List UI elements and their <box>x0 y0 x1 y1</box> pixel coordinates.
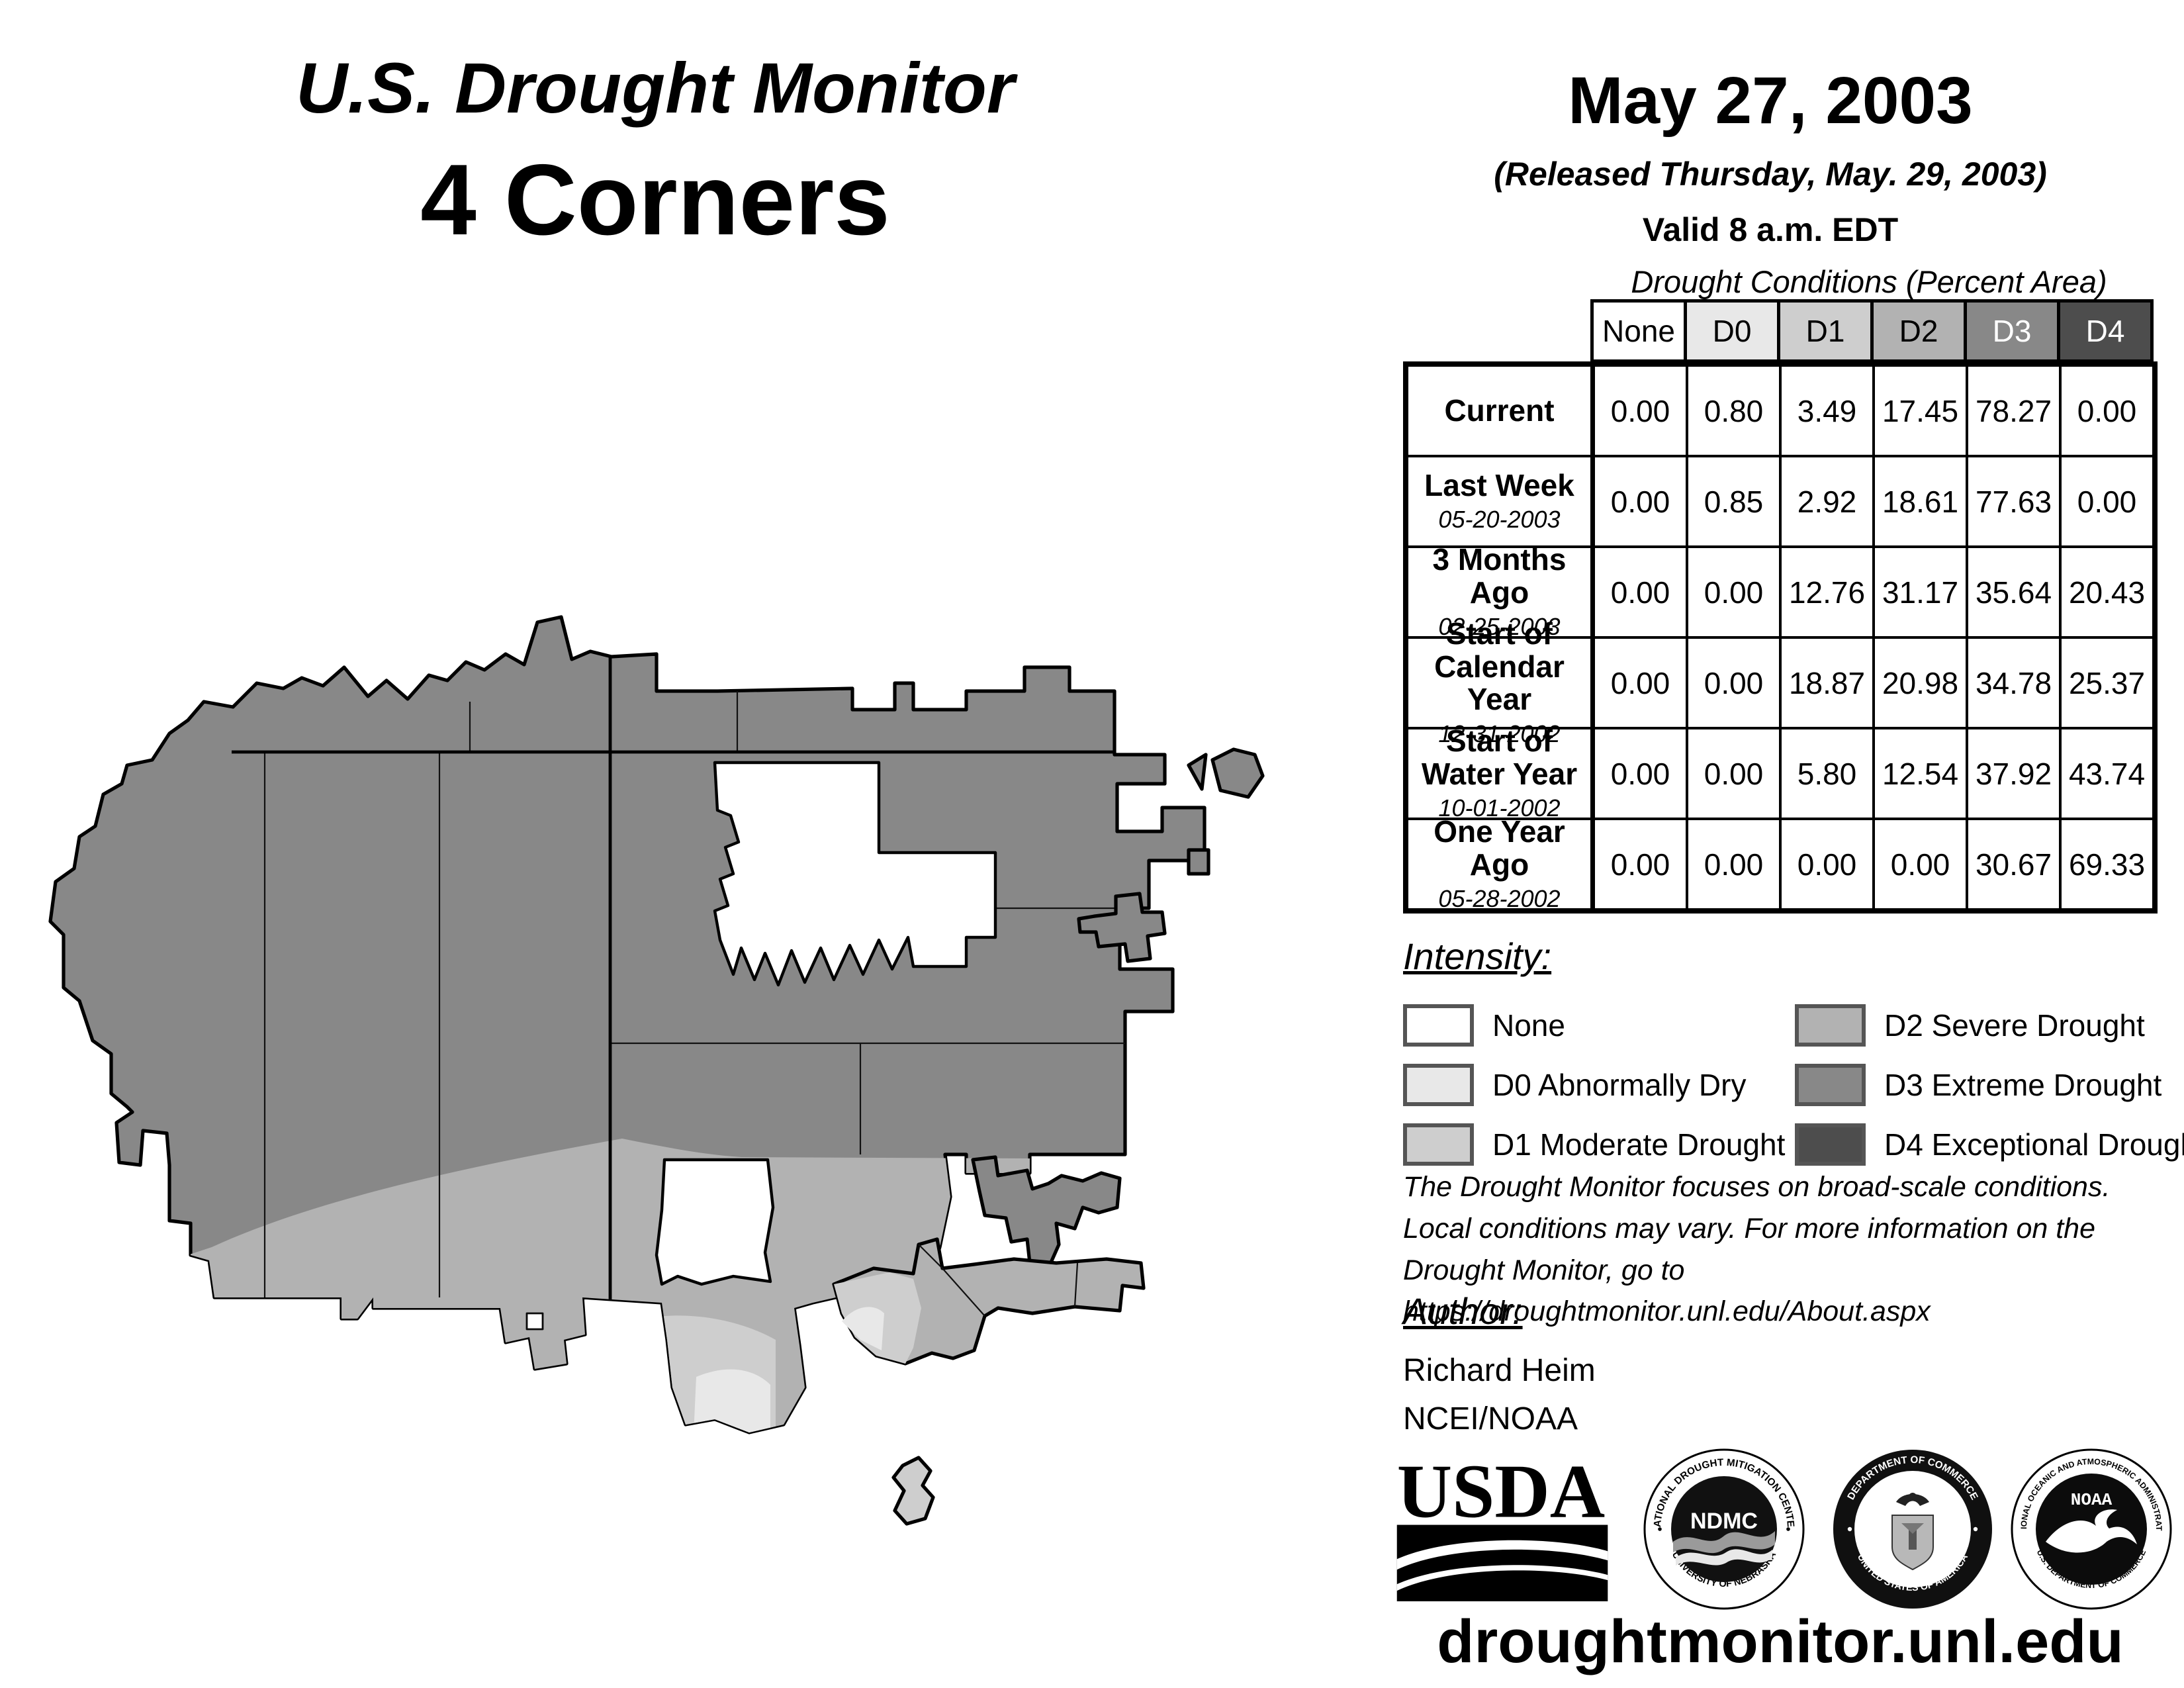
white-inlet <box>657 1160 773 1284</box>
legend-item: D4 Exceptional Drought <box>1795 1123 2165 1166</box>
map-date: May 27, 2003 <box>1403 63 2138 139</box>
value-cell: 20.43 <box>2060 547 2154 637</box>
table-row: Current0.000.803.4917.4578.270.00 <box>1407 365 2154 456</box>
value-cell: 0.00 <box>1594 819 1687 910</box>
value-cell: 69.33 <box>2060 819 2154 910</box>
row-label: Start of Calendar Year <box>1408 618 1590 716</box>
legend-grid: NoneD2 Severe DroughtD0 Abnormally DryD3… <box>1403 1004 2171 1166</box>
column-header-d0: D0 <box>1687 303 1777 359</box>
noaa-logo: NATIONAL OCEANIC AND ATMOSPHERIC ADMINIS… <box>2009 1446 2174 1612</box>
release-date: (Released Thursday, May. 29, 2003) <box>1403 155 2138 193</box>
noaa-logo-text: NOAA <box>2071 1490 2113 1510</box>
legend-color-chip <box>1795 1004 1866 1047</box>
value-cell: 0.85 <box>1687 456 1780 547</box>
value-cell: 18.87 <box>1780 637 1874 728</box>
column-header-d3: D3 <box>1967 303 2057 359</box>
value-cell: 78.27 <box>1967 365 2060 456</box>
column-header-none: None <box>1594 303 1684 359</box>
value-cell: 0.80 <box>1687 365 1780 456</box>
value-cell: 0.00 <box>1874 819 1967 910</box>
legend-color-chip <box>1795 1064 1866 1106</box>
report-title: U.S. Drought Monitor <box>0 46 1310 129</box>
row-label: Last Week <box>1424 469 1574 502</box>
title-block: U.S. Drought Monitor 4 Corners <box>0 46 1310 258</box>
value-cell: 30.67 <box>1967 819 2060 910</box>
intensity-legend: Intensity: NoneD2 Severe DroughtD0 Abnor… <box>1403 935 2171 1166</box>
row-label-cell: Start of Calendar Year12-31-2002 <box>1407 637 1594 728</box>
value-cell: 0.00 <box>1594 728 1687 819</box>
drought-map <box>40 583 1310 1549</box>
value-cell: 34.78 <box>1967 637 2060 728</box>
row-label-cell: Last Week05-20-2003 <box>1407 456 1594 547</box>
row-label: One Year Ago <box>1408 816 1590 881</box>
ndmc-logo-text: NDMC <box>1690 1509 1758 1534</box>
value-cell: 0.00 <box>1687 547 1780 637</box>
disclaimer-line: The Drought Monitor focuses on broad-sca… <box>1403 1166 2184 1208</box>
usda-logo-text: USDA <box>1397 1456 1605 1534</box>
value-cell: 0.00 <box>2060 456 2154 547</box>
legend-label: D3 Extreme Drought <box>1884 1067 2161 1103</box>
legend-item: None <box>1403 1004 1795 1047</box>
legend-item: D2 Severe Drought <box>1795 1004 2165 1047</box>
small-island-d1 <box>893 1458 933 1524</box>
value-cell: 25.37 <box>2060 637 2154 728</box>
legend-label: D1 Moderate Drought <box>1492 1127 1785 1162</box>
value-cell: 2.92 <box>1780 456 1874 547</box>
legend-label: D0 Abnormally Dry <box>1492 1067 1746 1103</box>
author-block: Author: Richard Heim NCEI/NOAA <box>1403 1289 1596 1437</box>
date-block: May 27, 2003 (Released Thursday, May. 29… <box>1403 63 2138 249</box>
column-header-d2: D2 <box>1874 303 1964 359</box>
usda-logo: USDA <box>1396 1456 1615 1605</box>
row-label-cell: Start of Water Year10-01-2002 <box>1407 728 1594 819</box>
drought-monitor-report: U.S. Drought Monitor 4 Corners May 27, 2… <box>0 0 2184 1688</box>
value-cell: 0.00 <box>1687 728 1780 819</box>
value-cell: 0.00 <box>1594 637 1687 728</box>
row-label: 3 Months Ago <box>1408 543 1590 609</box>
table-row: Last Week05-20-20030.000.852.9218.6177.6… <box>1407 456 2154 547</box>
value-cell: 0.00 <box>1594 547 1687 637</box>
drought-conditions-table: NoneD0D1D2D3D4 Current0.000.803.4917.457… <box>1403 299 2184 914</box>
table-header-row: NoneD0D1D2D3D4 <box>1590 299 2154 363</box>
author-org: NCEI/NOAA <box>1403 1401 1596 1437</box>
table-row: One Year Ago05-28-20020.000.000.000.0030… <box>1407 819 2154 910</box>
row-label-cell: Current <box>1407 365 1594 456</box>
value-cell: 77.63 <box>1967 456 2060 547</box>
row-date: 05-28-2002 <box>1438 885 1560 913</box>
value-cell: 0.00 <box>1687 819 1780 910</box>
value-cell: 37.92 <box>1967 728 2060 819</box>
table-row: Start of Calendar Year12-31-20020.000.00… <box>1407 637 2154 728</box>
row-label: Current <box>1444 395 1554 428</box>
footer-url: droughtmonitor.unl.edu <box>1403 1607 2158 1677</box>
legend-label: D4 Exceptional Drought <box>1884 1127 2184 1162</box>
disclaimer-line: Local conditions may vary. For more info… <box>1403 1208 2184 1250</box>
table-title: Drought Conditions (Percent Area) <box>1591 263 2147 300</box>
value-cell: 3.49 <box>1780 365 1874 456</box>
row-label-cell: One Year Ago05-28-2002 <box>1407 819 1594 910</box>
table-body: Current0.000.803.4917.4578.270.00Last We… <box>1403 361 2158 914</box>
row-date: 05-20-2003 <box>1438 506 1560 534</box>
peninsula-d3 <box>973 1157 1120 1268</box>
value-cell: 0.00 <box>1780 819 1874 910</box>
value-cell: 0.00 <box>1594 456 1687 547</box>
valid-time: Valid 8 a.m. EDT <box>1403 211 2138 249</box>
value-cell: 0.00 <box>1687 637 1780 728</box>
d0-zone <box>688 1370 770 1549</box>
author-name: Richard Heim <box>1403 1352 1596 1389</box>
legend-color-chip <box>1403 1123 1474 1166</box>
value-cell: 12.54 <box>1874 728 1967 819</box>
department-of-commerce-seal: DEPARTMENT OF COMMERCE UNITED STATES OF … <box>1830 1446 1995 1612</box>
value-cell: 35.64 <box>1967 547 2060 637</box>
value-cell: 20.98 <box>1874 637 1967 728</box>
value-cell: 17.45 <box>1874 365 1967 456</box>
legend-label: D2 Severe Drought <box>1884 1008 2145 1043</box>
column-header-d4: D4 <box>2060 303 2150 359</box>
value-cell: 31.17 <box>1874 547 1967 637</box>
value-cell: 5.80 <box>1780 728 1874 819</box>
legend-item: D3 Extreme Drought <box>1795 1064 2165 1106</box>
table-row: Start of Water Year10-01-20020.000.005.8… <box>1407 728 2154 819</box>
value-cell: 0.00 <box>1594 365 1687 456</box>
value-cell: 12.76 <box>1780 547 1874 637</box>
legend-item: D0 Abnormally Dry <box>1403 1064 1795 1106</box>
legend-heading: Intensity: <box>1403 935 1551 977</box>
row-label: Start of Water Year <box>1408 725 1590 790</box>
value-cell: 0.00 <box>2060 365 2154 456</box>
legend-color-chip <box>1403 1004 1474 1047</box>
column-header-d1: D1 <box>1780 303 1870 359</box>
region-name: 4 Corners <box>0 142 1310 258</box>
value-cell: 18.61 <box>1874 456 1967 547</box>
legend-label: None <box>1492 1008 1565 1043</box>
legend-item: D1 Moderate Drought <box>1403 1123 1795 1166</box>
white-hole <box>527 1313 543 1329</box>
legend-color-chip <box>1403 1064 1474 1106</box>
author-heading: Author: <box>1403 1290 1523 1332</box>
legend-color-chip <box>1795 1123 1866 1166</box>
value-cell: 43.74 <box>2060 728 2154 819</box>
ndmc-logo: NATIONAL DROUGHT MITIGATION CENTER UNIVE… <box>1641 1446 1807 1612</box>
